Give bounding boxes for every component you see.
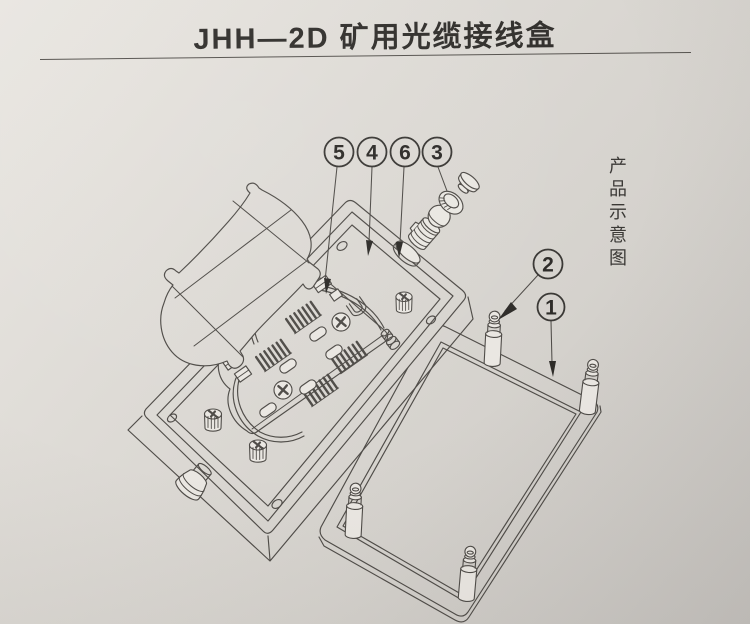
callout-6: 6 (391, 138, 420, 167)
callout-3-number: 3 (431, 142, 443, 165)
product-diagram: 5 4 6 3 2 1 (0, 0, 750, 624)
side-caption: 产品示意图 (604, 156, 630, 271)
callout-2: 2 (534, 250, 563, 279)
tray-screw (274, 381, 292, 399)
tray-screw (332, 313, 350, 331)
standoff-screw (205, 408, 222, 431)
standoff-screw (396, 291, 412, 313)
callout-5: 5 (325, 138, 354, 167)
callout-5-number: 5 (333, 142, 345, 165)
callout-3: 3 (423, 138, 452, 167)
callout-1-number: 1 (545, 297, 557, 320)
callout-4-number: 4 (366, 142, 378, 165)
callout-2-number: 2 (542, 254, 554, 277)
diagram-page: 5 4 6 3 2 1 JHH—2D 矿用光缆接线盒 (0, 0, 750, 624)
callout-4: 4 (358, 138, 387, 167)
standoff-screw (250, 439, 267, 462)
callout-6-number: 6 (399, 142, 411, 165)
callout-1: 1 (538, 294, 565, 321)
